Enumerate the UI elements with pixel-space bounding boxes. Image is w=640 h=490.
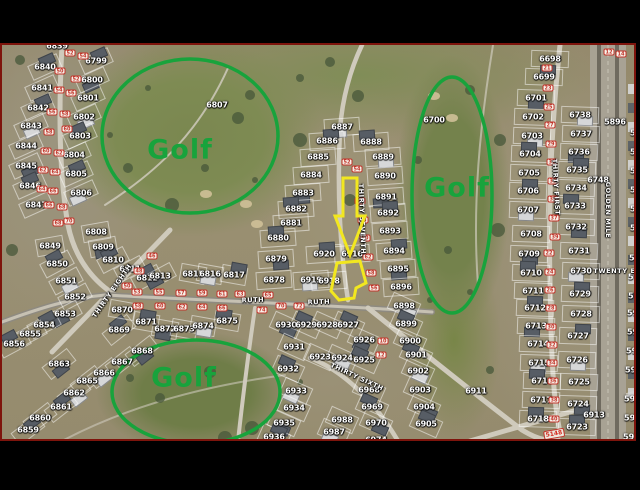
house-footprint: [628, 236, 634, 246]
house-footprint: [411, 369, 430, 385]
house-footprint: [577, 116, 593, 127]
parcel-boundary: [303, 343, 338, 372]
parcel-label: 6896: [390, 283, 411, 292]
parcel-label: 6868: [131, 347, 152, 356]
house-footprint: [61, 279, 80, 295]
parcel-label-edge: 59: [629, 254, 636, 263]
golf-annotation-text: Golf: [147, 135, 213, 166]
parcel-label: 6807: [206, 101, 227, 110]
parcel-label: 6808: [85, 228, 106, 237]
tree: [297, 379, 303, 385]
parcel-label: 6856: [3, 340, 24, 349]
parcel-boundary: [22, 402, 57, 434]
parcel-boundary: [520, 354, 559, 372]
house-footprint: [139, 309, 156, 322]
parcel-label-edge: 59: [630, 186, 636, 195]
parcel-boundary: [257, 249, 294, 269]
tree: [491, 223, 505, 237]
road-southeast: [368, 308, 558, 439]
parcel-label: 6842: [27, 104, 48, 113]
parcel-label: 6870: [111, 306, 132, 315]
parcel-label: 6934: [283, 404, 304, 413]
parcel-boundary: [558, 418, 597, 436]
address-marker: 54: [54, 87, 65, 94]
house-footprint: [628, 160, 634, 170]
tree: [414, 156, 422, 164]
house-footprint: [527, 137, 543, 148]
parcel-label: 6932: [277, 365, 298, 374]
tree: [444, 246, 452, 254]
tree: [145, 85, 151, 91]
street-label: RUTH: [308, 298, 331, 307]
golf-ellipse: [112, 340, 280, 439]
sand-trap: [428, 92, 440, 100]
street-label: THIRTY SEVENTH: [357, 184, 367, 255]
parcel-label: 6931: [283, 343, 304, 352]
parcel-label: 6925: [353, 356, 374, 365]
parcel-label: 6970: [365, 419, 386, 428]
parcel-label: 6810: [102, 256, 123, 265]
tree: [126, 374, 134, 382]
parcel-label: 6841: [31, 84, 52, 93]
parcel-label: 6895: [387, 265, 408, 274]
house-footprint: [333, 356, 352, 372]
tree: [201, 164, 209, 172]
tree: [165, 198, 179, 212]
parcel-label: 6716: [531, 377, 552, 386]
parcel-label-edge: 59: [630, 148, 636, 157]
parcel-label-edge: 5963: [627, 328, 636, 337]
parcel-label: 6712: [524, 304, 545, 313]
parcel-boundary: [510, 245, 549, 263]
parcel-label: 6707: [517, 206, 538, 215]
house-footprint: [628, 141, 634, 151]
house-footprint: [70, 390, 89, 408]
parcel-label: 6889: [372, 153, 393, 162]
tree: [204, 366, 216, 378]
sand-trap: [251, 220, 263, 228]
parcel-boundary: [510, 164, 549, 182]
address-marker: 29: [546, 141, 557, 148]
parcel-label-edge: 5961: [628, 292, 636, 301]
letterbox-bottom: [0, 441, 640, 490]
screenshot: 6839684068416842684368446845684668476799…: [0, 0, 640, 490]
parcel-label: 6709: [518, 250, 539, 259]
house-footprint: [21, 164, 40, 180]
parcel-boundary: [24, 74, 60, 102]
parcel-label: 6849: [39, 242, 60, 251]
parcel-label: 6805: [65, 170, 86, 179]
address-marker: 54: [78, 53, 89, 60]
parcel-boundary: [8, 132, 44, 160]
house-footprint: [34, 93, 53, 109]
street-label: THIRTY SIXTH: [329, 361, 385, 393]
parcel-label: 6728: [570, 310, 591, 319]
parcel-label: 6845: [15, 162, 36, 171]
parcel-boundary: [325, 406, 360, 435]
tree: [296, 74, 304, 82]
parcel-boundary: [557, 218, 596, 236]
parcel-boundary: [289, 311, 324, 340]
parcel-boundary: [279, 377, 314, 406]
parcel-label: 6928: [316, 321, 337, 330]
parcel-boundary: [560, 242, 599, 260]
house-footprint: [319, 241, 336, 252]
parcel-label: 6800: [81, 76, 102, 85]
parcel-boundary: [558, 351, 597, 369]
parcel-boundary: [562, 125, 601, 143]
parcel-boundary: [516, 299, 555, 317]
parcel-label: 6855: [19, 330, 40, 339]
parcel-boundary: [220, 264, 249, 286]
house-footprint: [571, 228, 587, 239]
parcel-boundary: [559, 395, 598, 413]
house-footprint: [52, 312, 71, 328]
house-footprint: [522, 179, 538, 190]
address-marker: 14: [616, 51, 627, 58]
parcel-label: 6936: [263, 433, 284, 442]
parcel-label-edge: 596: [626, 347, 636, 356]
parcel-label: 6708: [520, 230, 541, 239]
address-marker: 39: [550, 234, 561, 241]
tree: [218, 431, 232, 439]
parcel-label: 6879: [265, 255, 286, 264]
address-marker: 30: [546, 324, 557, 331]
parcel-label: 6729: [569, 290, 590, 299]
parcel-boundary: [277, 394, 312, 423]
house-footprint: [628, 293, 634, 303]
parcel-boundary: [74, 66, 110, 94]
tree: [252, 177, 258, 183]
parcel-label: 6727: [567, 332, 588, 341]
house-footprint: [360, 392, 379, 408]
house-footprint: [628, 122, 634, 132]
highlighted-parcel-6916[interactable]: [331, 261, 366, 300]
address-marker: 26: [545, 287, 556, 294]
parcel-label: 6724: [567, 400, 588, 409]
street-label: THIRTY EIGHTH: [90, 263, 133, 320]
house-footprint: [540, 65, 556, 76]
house-footprint: [94, 247, 111, 260]
address-marker: 12: [604, 49, 615, 56]
address-marker: 48: [134, 268, 145, 275]
golf-annotation-text: Golf: [151, 363, 217, 394]
parcel-label-edge: 5966: [624, 414, 636, 423]
parcel-boundary: [20, 94, 56, 122]
address-marker: 38: [549, 397, 560, 404]
parcel-label: 6968: [358, 386, 379, 395]
house-footprint: [530, 364, 546, 375]
address-marker: 25: [544, 104, 555, 111]
parcel-boundary: [525, 68, 564, 86]
parcel-label: 6888: [360, 138, 381, 147]
address-marker: 72: [294, 303, 305, 310]
house-footprint: [69, 121, 88, 137]
cart-path-2: [476, 45, 493, 285]
parcel-label-edge: 5962: [627, 309, 636, 318]
house-footprint: [569, 415, 585, 426]
parcel-label: 6847: [25, 201, 46, 210]
house-footprint: [340, 310, 359, 326]
parcel-label: 6813: [149, 272, 170, 281]
golf-ellipses-layer: [2, 45, 634, 439]
parcel-label: 6899: [395, 320, 416, 329]
parcel-boundary: [78, 47, 114, 75]
house-footprint: [109, 314, 128, 332]
parcel-boundary: [355, 393, 390, 422]
house-footprint: [359, 129, 376, 140]
parcel-label: 6861: [50, 403, 71, 412]
house-footprint: [45, 249, 64, 265]
house-footprint: [331, 127, 348, 138]
house-footprint: [137, 263, 156, 279]
house-footprint: [378, 157, 395, 168]
parcel-label: 6893: [379, 227, 400, 236]
golf-annotation-text: Golf: [424, 173, 490, 204]
street-label: THIRTY FIRST: [551, 159, 562, 216]
parcel-boundary: [347, 346, 382, 375]
house-footprint: [302, 280, 319, 291]
parcel-label: 6935: [273, 419, 294, 428]
house-footprint: [294, 193, 311, 204]
house-footprint: [195, 326, 212, 339]
parcel-boundary: [558, 161, 597, 179]
address-marker: 58: [44, 129, 55, 136]
parcel-boundary: [409, 410, 444, 439]
parcel-label: 6717: [530, 396, 551, 405]
house-footprint: [199, 274, 216, 287]
parcel-boundary: [375, 241, 412, 261]
parcel-boundary: [367, 187, 404, 207]
address-marker: 22: [544, 250, 555, 257]
house-footprint: [570, 361, 586, 372]
parcel-boundary: [323, 117, 360, 137]
map-canvas[interactable]: 6839684068416842684368446845684668476799…: [0, 43, 636, 441]
road-south-1: [238, 308, 255, 439]
parcel-boundary: [325, 344, 360, 373]
parcel-boundary: [13, 112, 49, 140]
parcel-boundary: [213, 310, 242, 332]
parcel-boundary: [132, 311, 161, 333]
house-footprint: [82, 78, 101, 94]
parcel-label: 6817: [223, 271, 244, 280]
parcel-boundary: [12, 319, 48, 348]
house-footprint: [568, 272, 584, 283]
address-marker: 57: [176, 290, 187, 297]
house-footprint: [321, 430, 340, 441]
address-marker: 28: [546, 305, 557, 312]
parcel-label: 6811: [119, 265, 140, 274]
parcel-label-edge: 596: [625, 366, 636, 375]
tree: [123, 163, 133, 173]
street-label: GOLDEN MILE: [604, 182, 612, 239]
house-footprint: [273, 259, 290, 270]
parcel-boundary: [27, 53, 63, 81]
parcel-label: 6799: [85, 57, 106, 66]
parcel-boundary: [108, 299, 137, 321]
house-footprint: [95, 370, 114, 388]
parcel-boundary: [359, 409, 394, 438]
parcel-boundary: [62, 122, 98, 150]
address-marker: 68: [57, 204, 68, 211]
address-marker: 58: [358, 217, 369, 224]
parcel-boundary: [196, 263, 225, 285]
parcel-boundary: [284, 183, 321, 203]
parcel-boundary: [513, 127, 552, 145]
house-footprint: [420, 405, 439, 421]
parcel-label: 6704: [519, 150, 540, 159]
parcel-label: 6919: [300, 276, 321, 285]
address-marker: 32: [547, 342, 558, 349]
parcel-label: 6723: [566, 423, 587, 432]
address-marker: 66: [44, 202, 55, 209]
parcel-label: 6901: [405, 351, 426, 360]
parcel-boundary: [382, 277, 419, 297]
parcel-label: 6892: [377, 209, 398, 218]
parcel-label: 6804: [63, 151, 84, 160]
parcel-label: 6911: [465, 387, 486, 396]
address-marker: 10: [378, 338, 389, 345]
address-marker: 58: [366, 270, 377, 277]
parcel-boundary: [387, 292, 422, 321]
parcel-label: 6891: [375, 193, 396, 202]
address-marker: 24: [545, 269, 556, 276]
parcel-label: 6904: [413, 403, 434, 412]
parcel-boundary: [310, 271, 347, 291]
house-footprint: [100, 245, 119, 261]
parcel-boundary: [561, 285, 600, 303]
road-number-label: 5148: [543, 428, 565, 440]
parcel-label: 6731: [568, 247, 589, 256]
address-marker: 61: [217, 291, 228, 298]
tree: [494, 134, 506, 146]
parcel-boundary: [352, 132, 389, 152]
parcel-label: 6923: [309, 353, 330, 362]
address-marker: 52: [71, 76, 82, 83]
parcel-label: 6853: [54, 310, 75, 319]
parcel-label: 6735: [566, 166, 587, 175]
parcel-label: 6706: [517, 187, 538, 196]
parcel-label: 6926: [353, 336, 374, 345]
house-footprint: [568, 153, 584, 164]
parcel-label: 6860: [29, 414, 50, 423]
house-footprint: [628, 312, 634, 322]
parcel-label: 6711: [522, 287, 543, 296]
parcel-boundary: [523, 372, 562, 390]
parcel-label: 5896: [604, 118, 625, 127]
address-marker: 54: [352, 166, 363, 173]
address-marker: 46: [147, 253, 158, 260]
address-marker: 63: [235, 291, 246, 298]
parcel-boundary: [560, 143, 599, 161]
tree: [427, 297, 433, 303]
house-footprint: [23, 414, 42, 432]
address-marker: 62: [363, 254, 374, 261]
parcel-label: 6859: [17, 426, 38, 435]
parcel-label: 6902: [407, 367, 428, 376]
parcel-boundary: [96, 246, 130, 274]
address-marker: 58: [60, 111, 71, 118]
house-footprint: [146, 274, 165, 290]
parcel-label: 6920: [313, 250, 334, 259]
parcel-label-edge: 59: [630, 167, 636, 176]
house-footprint: [295, 310, 314, 326]
parcel-label: 6846: [19, 182, 40, 191]
highlight-layer: [2, 45, 634, 439]
house-footprint: [270, 422, 289, 438]
parcel-boundary: [403, 376, 438, 405]
parcel-label-edge: 59: [630, 224, 636, 233]
parcel-boundary: [561, 106, 600, 124]
parcel-boundary: [399, 341, 434, 370]
road-ruth-surface: [2, 295, 432, 322]
parcel-label: 6736: [568, 148, 589, 157]
parcel-label: 6988: [331, 416, 352, 425]
parcel-boundary: [130, 264, 164, 292]
parcel-label: 6812: [136, 274, 157, 283]
parcel-boundary: [26, 310, 62, 339]
address-marker: 31: [547, 159, 558, 166]
parcel-boundary: [560, 373, 599, 391]
tree: [293, 133, 307, 147]
parcel-label: 6878: [263, 276, 284, 285]
address-marker: 62: [177, 304, 188, 311]
house-footprint: [574, 405, 590, 416]
parcel-label: 6900: [399, 337, 420, 346]
parcel-label: 6844: [15, 142, 36, 151]
parcel-label: 6862: [63, 389, 84, 398]
house-footprint: [628, 274, 634, 284]
parcel-boundary: [317, 418, 352, 441]
address-marker: 21: [542, 65, 553, 72]
parcel-boundary: [269, 311, 304, 340]
address-marker: 56: [47, 109, 58, 116]
house-footprint: [23, 124, 42, 140]
parcel-label: 6700: [423, 116, 444, 125]
address-marker: 23: [543, 85, 554, 92]
address-marker: 64: [37, 186, 48, 193]
parcel-boundary: [124, 335, 159, 367]
parcel-boundary: [88, 236, 119, 259]
parcel-boundary: [509, 182, 548, 200]
parcel-boundary: [86, 357, 121, 389]
parcel-label-edge: 5965: [624, 395, 636, 404]
address-marker: 65: [263, 292, 274, 299]
address-marker: 56: [66, 90, 77, 97]
address-marker: 70: [276, 303, 287, 310]
address-marker: 33: [548, 178, 559, 185]
parcel-label: 6916: [341, 250, 362, 259]
tree: [486, 366, 494, 374]
house-footprint: [397, 309, 416, 325]
parcel-boundary: [41, 348, 76, 380]
house-footprint: [38, 52, 57, 68]
roads-layer: [2, 45, 634, 439]
house-footprint: [518, 211, 534, 222]
parcel-boundary: [347, 326, 382, 355]
parcel-boundary: [267, 409, 302, 438]
house-footprint: [628, 179, 634, 189]
house-footprint: [352, 338, 371, 354]
parcel-boundary: [407, 393, 442, 422]
parcel-boundary: [277, 333, 312, 362]
address-marker: 52: [65, 50, 76, 57]
house-footprint: [399, 304, 418, 320]
parcel-boundary: [512, 225, 551, 243]
parcel-boundary: [70, 84, 106, 112]
address-marker: 56: [369, 285, 380, 292]
parcel-label: 6710: [520, 269, 541, 278]
